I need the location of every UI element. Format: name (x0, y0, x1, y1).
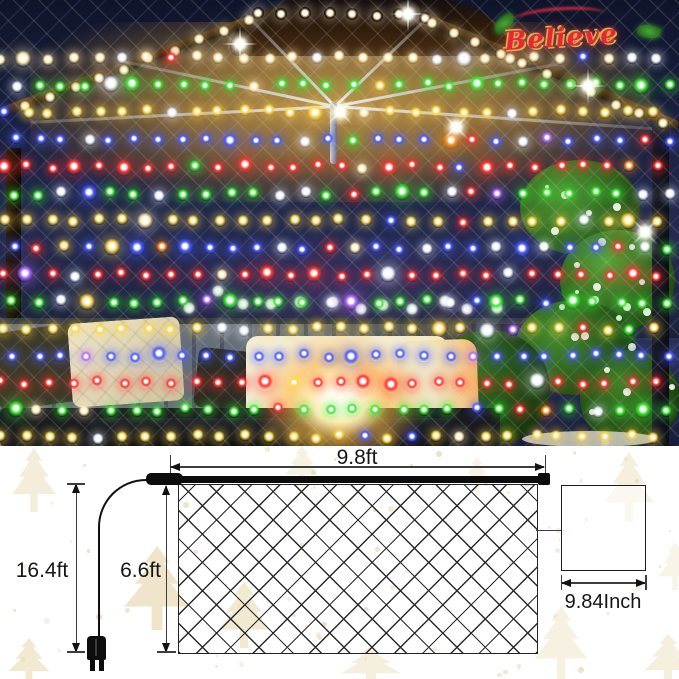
starburst-light (322, 94, 358, 130)
lifestyle-photo: Believe (0, 0, 679, 446)
product-image: Believe 9.8ft 6.6ft (0, 0, 679, 679)
leader-line (536, 530, 561, 531)
starburst-light (627, 214, 663, 250)
net-lights (0, 0, 679, 446)
holly-leaf-icon (637, 22, 662, 42)
starburst-light (438, 109, 474, 145)
starburst-light (390, 0, 426, 32)
believe-sign: Believe (494, 0, 663, 66)
net-grid (178, 484, 538, 654)
net-top-rail (155, 476, 549, 483)
rail-end-cap (538, 473, 550, 485)
sign-text: Believe (503, 19, 618, 57)
mesh-detail-square (561, 485, 646, 571)
power-plug (87, 636, 106, 660)
mesh-size-label: 9.84Inch (548, 591, 658, 614)
plug-prong (90, 659, 95, 671)
cord-connector (146, 473, 183, 485)
height-tick-bottom (157, 651, 176, 653)
starburst-light (570, 68, 606, 104)
total-length-label: 16.4ft (8, 559, 76, 583)
dimension-diagram: 9.8ft 6.6ft 16.4ft 9.84Inch (0, 446, 679, 679)
height-arrow (166, 486, 168, 652)
total-length-tick-bottom (67, 651, 85, 653)
power-cord (98, 479, 152, 641)
total-length-tick-top (67, 483, 85, 485)
mesh-size-arrow (562, 582, 645, 584)
width-arrow (171, 466, 544, 468)
plug-prong (99, 659, 104, 671)
starburst-light (222, 26, 258, 62)
